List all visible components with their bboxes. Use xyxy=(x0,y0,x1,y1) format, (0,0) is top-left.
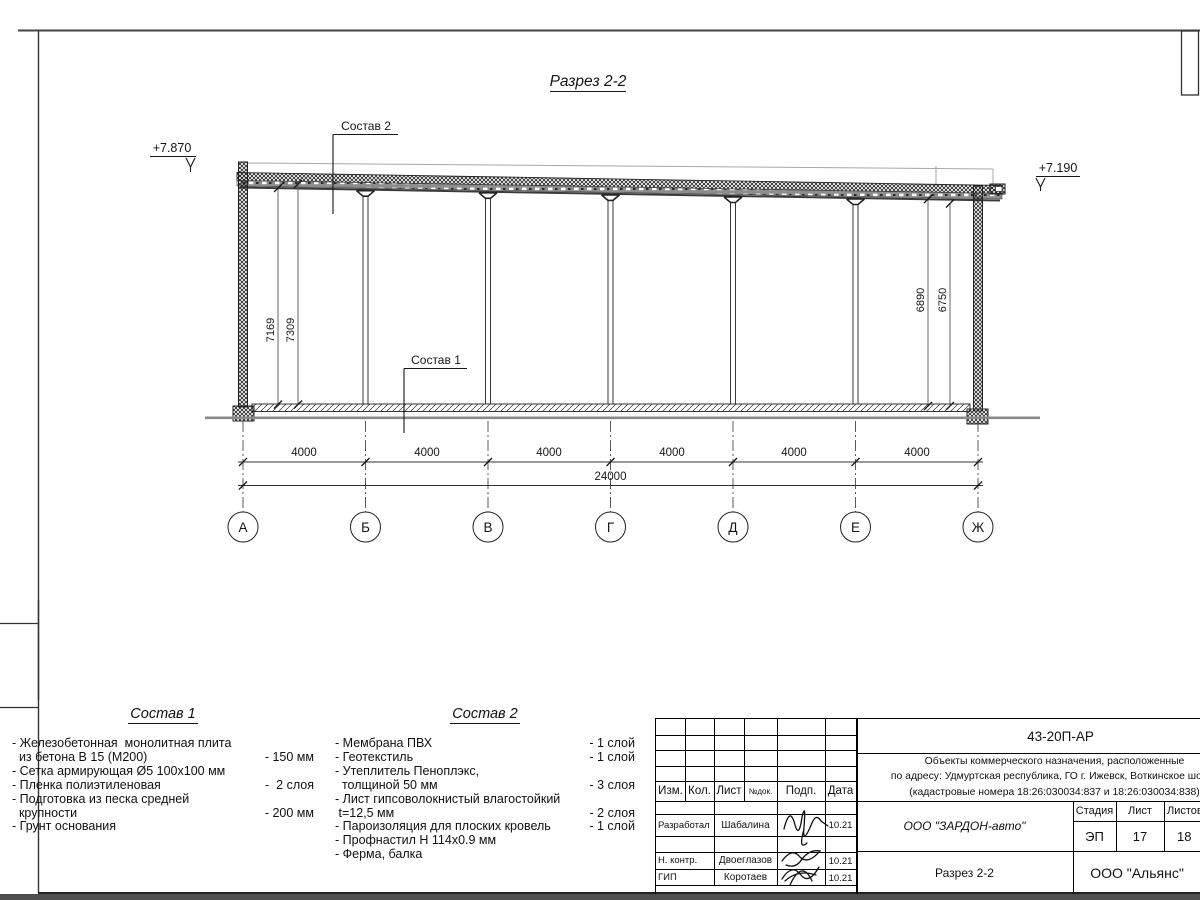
list-item: - Сетка армирующая Ø5 100х100 мм xyxy=(12,765,314,779)
dim-7169: 7169 xyxy=(265,318,277,342)
right-wall xyxy=(974,186,983,411)
elevation-left-value: +7.870 xyxy=(153,141,192,155)
dim-7309: 7309 xyxy=(285,318,297,342)
roof-assembly xyxy=(237,173,1005,201)
bay-dim-4: 4000 xyxy=(659,447,685,459)
tb-header-list: Лист xyxy=(714,781,744,801)
bay-dim-1: 4000 xyxy=(291,447,317,459)
axis-bubbles: А Б В Г Д Е Ж xyxy=(228,512,993,542)
elevation-mark-right: +7.190 xyxy=(1036,161,1080,191)
column-V xyxy=(479,193,497,405)
bay-dim-2: 4000 xyxy=(414,447,440,459)
tb-role-developer: Разработал xyxy=(658,814,714,836)
tb-sheets-value: 18 xyxy=(1164,821,1200,851)
axis-label-B: Б xyxy=(361,520,370,535)
tb-header-ndoc: №док. xyxy=(744,781,777,801)
tb-contractor: ООО "Альянс" xyxy=(1073,851,1200,894)
tb-name-ncontr: Двоеглазов xyxy=(714,852,777,869)
view-title: Разрез 2-2 xyxy=(550,73,627,92)
signature-ncontr xyxy=(782,851,820,866)
tb-header-podp: Подп. xyxy=(777,781,825,801)
list-item: из бетона В 15 (М200)- 150 мм xyxy=(12,751,314,765)
list-item: - Подготовка из песка средней xyxy=(12,793,314,807)
column-D xyxy=(724,197,742,405)
tb-name-gip: Коротаев xyxy=(714,869,777,885)
tb-name-developer: Шабалина xyxy=(714,814,777,836)
scan-edge xyxy=(0,894,1200,900)
dim-right: 6890 6750 xyxy=(915,195,954,410)
tb-project-name: Объекты коммерческого назначения, распол… xyxy=(856,754,1200,801)
list-item: - Мембрана ПВХ- 1 слой xyxy=(335,737,635,751)
tb-sheet-value: 17 xyxy=(1116,821,1164,851)
leader-sostav-2-label: Состав 2 xyxy=(341,119,391,133)
axis-label-D: Д xyxy=(728,520,737,535)
tb-doc-code: 43-20П-АР xyxy=(856,719,1200,753)
elevation-mark-left: +7.870 xyxy=(150,141,196,172)
tb-sheets-label: Листов xyxy=(1164,801,1200,821)
axis-label-V: В xyxy=(483,520,492,535)
axis-label-E: Е xyxy=(851,520,860,535)
composition-1-title: Состав 1 xyxy=(12,706,314,722)
tb-company: ООО "ЗАРДОН-авто" xyxy=(856,801,1073,851)
signature-developer xyxy=(784,811,828,845)
bay-dim-3: 4000 xyxy=(536,447,562,459)
composition-1-list: Состав 1 - Железобетонная монолитная пли… xyxy=(12,706,314,834)
signature-gip xyxy=(782,867,819,885)
composition-2-list: Состав 2 - Мембрана ПВХ- 1 слой - Геотек… xyxy=(335,706,635,862)
leader-sostav-1-label: Состав 1 xyxy=(411,353,461,367)
left-wall xyxy=(239,162,248,407)
axis-label-ZH: Ж xyxy=(972,520,985,535)
axis-label-A: А xyxy=(238,520,247,535)
signatures xyxy=(774,799,830,891)
tb-header-izm: Изм. xyxy=(656,781,685,801)
list-item: - Грунт основания xyxy=(12,820,314,834)
tb-sheet-label: Лист xyxy=(1116,801,1164,821)
list-item: - Утеплитель Пеноплэкс, xyxy=(335,765,635,779)
list-item: - Пленка полиэтиленовая- 2 слоя xyxy=(12,779,314,793)
bay-dim-6: 4000 xyxy=(904,447,930,459)
title-block: Изм. Кол. Лист №док. Подп. Дата Разработ… xyxy=(655,718,1200,896)
tb-role-gip: ГИП xyxy=(658,869,714,885)
leader-sostav-2: Состав 2 xyxy=(333,119,398,214)
list-item: - Ферма, балка xyxy=(335,848,635,862)
list-item: - Пароизоляция для плоских кровель- 1 сл… xyxy=(335,820,635,834)
drawing-sheet: Разрез 2-2 +7.870 +7.190 xyxy=(0,0,1200,900)
floor-slab xyxy=(205,404,1040,424)
bay-dim-5: 4000 xyxy=(781,447,807,459)
axis-label-G: Г xyxy=(607,520,615,535)
tb-header-data: Дата xyxy=(825,781,856,801)
list-item: толщиной 50 мм- 3 слоя xyxy=(335,779,635,793)
dim-left: 7169 7309 xyxy=(265,180,302,409)
dim-6750: 6750 xyxy=(937,288,949,312)
tb-stage-label: Стадия xyxy=(1073,801,1116,821)
axis-lines xyxy=(243,421,978,512)
list-item: крупности- 200 мм xyxy=(12,807,314,821)
list-item: - Геотекстиль- 1 слой xyxy=(335,751,635,765)
columns xyxy=(357,191,865,405)
list-item: - Лист гипсоволокнистый влагостойкий xyxy=(335,793,635,807)
tb-stage-value: ЭП xyxy=(1073,821,1116,851)
list-item: - Профнастил Н 114х0.9 мм xyxy=(335,834,635,848)
total-dim: 24000 xyxy=(595,471,627,483)
tb-header-kol: Кол. xyxy=(685,781,714,801)
elevation-right-value: +7.190 xyxy=(1039,161,1078,175)
list-item: t=12,5 мм- 2 слоя xyxy=(335,807,635,821)
column-G xyxy=(602,195,620,405)
section-drawing: Разрез 2-2 +7.870 +7.190 xyxy=(0,0,1200,700)
composition-2-title: Состав 2 xyxy=(335,706,635,722)
list-item: - Железобетонная монолитная плита xyxy=(12,737,314,751)
dim-6890: 6890 xyxy=(915,288,927,312)
view-title-text: Разрез 2-2 xyxy=(550,73,627,90)
roof-end-cap xyxy=(990,184,1005,194)
tb-drawing-name: Разрез 2-2 xyxy=(856,851,1073,894)
column-E xyxy=(847,199,865,405)
leader-sostav-1: Состав 1 xyxy=(404,353,467,433)
column-B xyxy=(357,191,375,405)
tb-role-ncontr: Н. контр. xyxy=(658,852,714,869)
